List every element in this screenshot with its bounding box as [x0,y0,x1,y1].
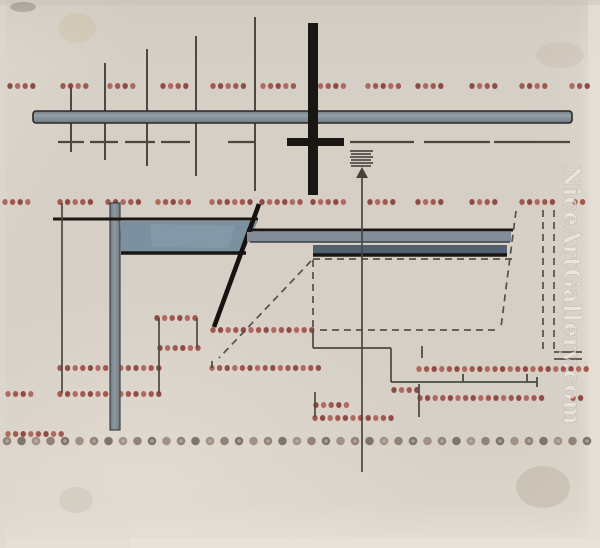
dimension-line [391,374,537,387]
paper-patches [0,0,600,548]
up-arrow [356,167,368,472]
artwork-scan: NiceArtGallery.com [0,0,600,548]
red-dot-rows [2,83,590,437]
vertical-slate-bar [110,203,120,430]
big-dot-row [3,437,592,446]
trapezoid-group [53,204,259,327]
tall-vertical-lines [71,17,255,191]
black-cross [287,23,344,195]
artwork-canvas: NiceArtGallery.com [0,0,600,548]
middle-bars [247,230,513,255]
hatch-marks [350,151,373,166]
top-bar [33,111,572,123]
watermark-text: NiceArtGallery.com [558,166,585,425]
artwork-layers [0,0,600,548]
smudges [10,2,584,513]
